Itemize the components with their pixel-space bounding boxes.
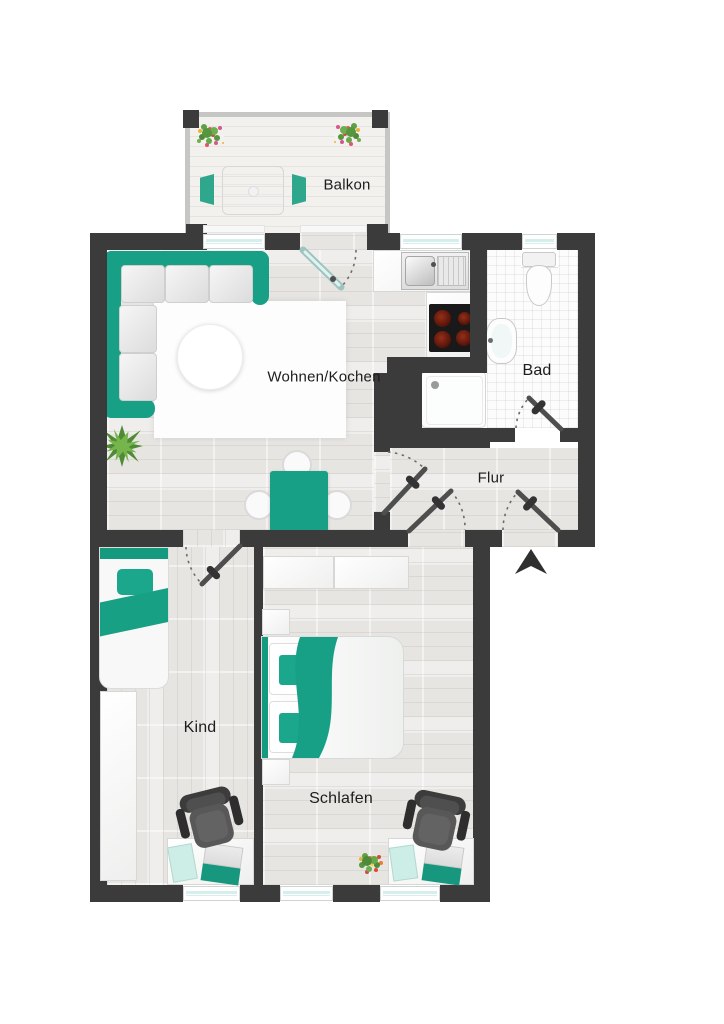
flower-box-icon (202, 128, 212, 138)
balcony-table-knob (248, 186, 259, 197)
floorplan-canvas: Balkon Wohnen/Kochen Bad Flur Kind Schla… (0, 0, 724, 1024)
window-icon (380, 886, 440, 901)
wardrobe-icon (334, 556, 409, 589)
floor-patch (300, 233, 367, 250)
flower-plant-icon (362, 856, 372, 866)
balcony-threshold (203, 225, 265, 233)
wall (374, 512, 390, 531)
wall (560, 428, 578, 442)
floor-hall (390, 448, 578, 530)
wall (387, 357, 487, 373)
double-bed-icon (261, 636, 404, 759)
wall (465, 530, 502, 547)
wall (470, 250, 487, 357)
balcony (185, 112, 390, 237)
room-label-schlafen: Schlafen (309, 790, 373, 808)
notepad-icon (389, 844, 418, 881)
floor-patch (502, 530, 558, 547)
balcony-chair-icon (292, 174, 306, 205)
room-label-wohnen-kochen: Wohnen/Kochen (267, 369, 380, 386)
kitchen-sink-icon (401, 252, 469, 290)
nightstand-icon (262, 609, 290, 635)
coffee-table-icon (177, 324, 243, 390)
wall (240, 530, 408, 547)
window-icon (203, 234, 265, 249)
room-label-bad: Bad (522, 362, 551, 380)
window-icon (183, 886, 240, 901)
floor-patch (408, 530, 465, 547)
entrance-arrow-icon (515, 549, 547, 574)
balcony-post (183, 110, 199, 128)
wall (90, 885, 183, 902)
wall (107, 530, 183, 547)
wall (367, 233, 400, 250)
balcony-threshold (300, 225, 367, 233)
single-bed-icon (99, 547, 169, 689)
wall (440, 885, 490, 902)
window-icon (522, 234, 557, 249)
room-label-balkon: Balkon (323, 177, 370, 194)
wall (470, 428, 515, 442)
balcony-chair-icon (200, 174, 214, 205)
shower-icon (421, 371, 486, 428)
window-icon (400, 234, 462, 249)
nightstand-icon (262, 759, 290, 785)
wardrobe-icon (100, 691, 137, 881)
washbasin-icon (486, 318, 517, 364)
balcony-post (372, 110, 388, 128)
wall (578, 233, 595, 547)
wall (333, 885, 380, 902)
wall (462, 233, 522, 250)
floor-patch (374, 450, 390, 512)
dining-table-icon (270, 471, 328, 532)
flower-box-icon (346, 127, 356, 137)
room-label-kind: Kind (184, 719, 217, 737)
wall (390, 373, 422, 430)
toilet-icon (522, 252, 556, 306)
room-label-flur: Flur (478, 470, 505, 487)
floor-patch (183, 530, 240, 547)
wall (240, 885, 280, 902)
window-icon (280, 886, 333, 901)
potted-plant-icon (101, 425, 143, 467)
wall (265, 233, 300, 250)
wall (473, 530, 490, 902)
wall (558, 530, 595, 547)
wardrobe-icon (263, 556, 334, 589)
